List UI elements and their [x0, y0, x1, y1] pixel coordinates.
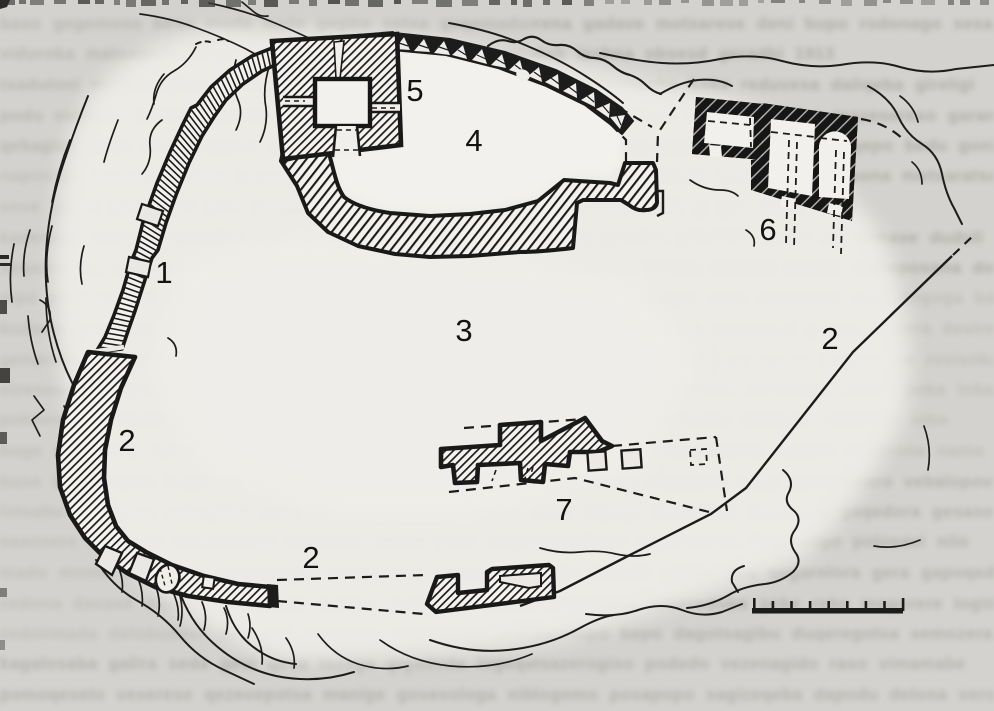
svg-text:7: 7 [555, 492, 572, 527]
svg-text:2: 2 [821, 321, 838, 356]
svg-text:5: 5 [406, 73, 423, 108]
svg-text:4: 4 [465, 123, 482, 158]
svg-text:6: 6 [759, 212, 776, 247]
svg-text:2: 2 [302, 540, 319, 575]
svg-text:1: 1 [155, 255, 172, 290]
svg-text:2: 2 [118, 423, 135, 458]
svg-text:3: 3 [455, 313, 472, 348]
